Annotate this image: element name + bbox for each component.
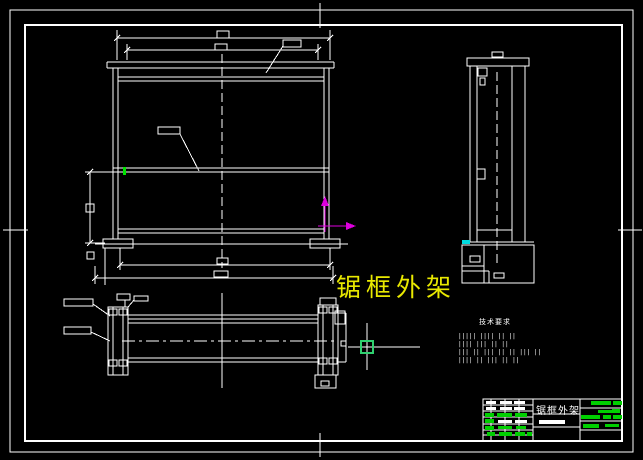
leader-line (91, 332, 110, 341)
leader-text-box (283, 40, 301, 47)
leader-line (93, 304, 110, 316)
tech-notes-line: |||| || ||| || || (458, 358, 519, 364)
title-block-text-bar (527, 432, 532, 436)
osnap-tick-green (123, 167, 126, 175)
title-block-text-bar (515, 432, 525, 436)
title-block-text-bar (612, 409, 620, 413)
title-block-text-bar (515, 413, 527, 417)
front-view-frame[interactable] (95, 54, 348, 268)
cad-linework (0, 0, 643, 460)
leader-line (180, 134, 199, 171)
title-block-text-bar (500, 401, 512, 404)
dim-text-box (341, 341, 346, 346)
title-block-text-bar (591, 401, 611, 405)
title-block-text-bar (485, 426, 494, 430)
crosshair-cursor (348, 323, 420, 370)
title-block-text-bar (497, 413, 512, 417)
plan-view-frame[interactable] (64, 293, 346, 388)
title-block-text-bar (500, 407, 512, 410)
annotation-text[interactable]: 锯框外架 (336, 268, 456, 304)
dim-text-box (217, 31, 229, 38)
title-block-text-bar (515, 420, 527, 423)
title-block-text-bar (486, 407, 496, 410)
title-block-text-bar (514, 401, 525, 404)
title-block-text-bar (498, 420, 512, 423)
dim-text-box (87, 252, 94, 259)
cad-canvas[interactable]: 锯框外架 技术要求 ||||| |||| || |||||| ||| || ||… (0, 0, 643, 460)
leader-text-box (64, 327, 91, 334)
title-block-text-bar (598, 410, 612, 413)
title-block-drawing-name: 锯框外架 (536, 402, 578, 417)
title-block-text-bar (514, 407, 525, 410)
tech-notes-line: ||||| |||| || || (458, 334, 516, 340)
sheet-border (3, 3, 642, 457)
title-block-text-bar (603, 415, 611, 419)
title-block-text-bar (581, 415, 600, 419)
dim-text-box (215, 44, 227, 50)
tech-notes-line: ||| || ||| || || ||| || (458, 350, 541, 356)
title-block-text-bar (539, 420, 565, 424)
title-block-text-bar (498, 426, 512, 429)
title-block-text-bar (485, 413, 494, 417)
title-block-text-bar (485, 419, 494, 423)
title-block-text-bar (583, 424, 599, 428)
title-block-text-bar (605, 424, 619, 427)
title-block-text-bar (487, 432, 495, 436)
tech-notes-line: |||| ||| || || (458, 342, 509, 348)
tech-notes-title: 技术要求 (479, 317, 511, 327)
leader-text-box (64, 299, 93, 306)
side-view-frame[interactable] (462, 52, 534, 283)
title-block-text-bar (613, 415, 622, 419)
title-block-text-bar (516, 426, 526, 429)
dim-text-box (214, 271, 228, 277)
title-block-text-bar (499, 432, 512, 436)
osnap-tick-cyan (462, 240, 470, 244)
title-block-text-bar (613, 401, 622, 405)
leader-text-box (158, 127, 180, 134)
title-block-text-bar (486, 401, 496, 404)
